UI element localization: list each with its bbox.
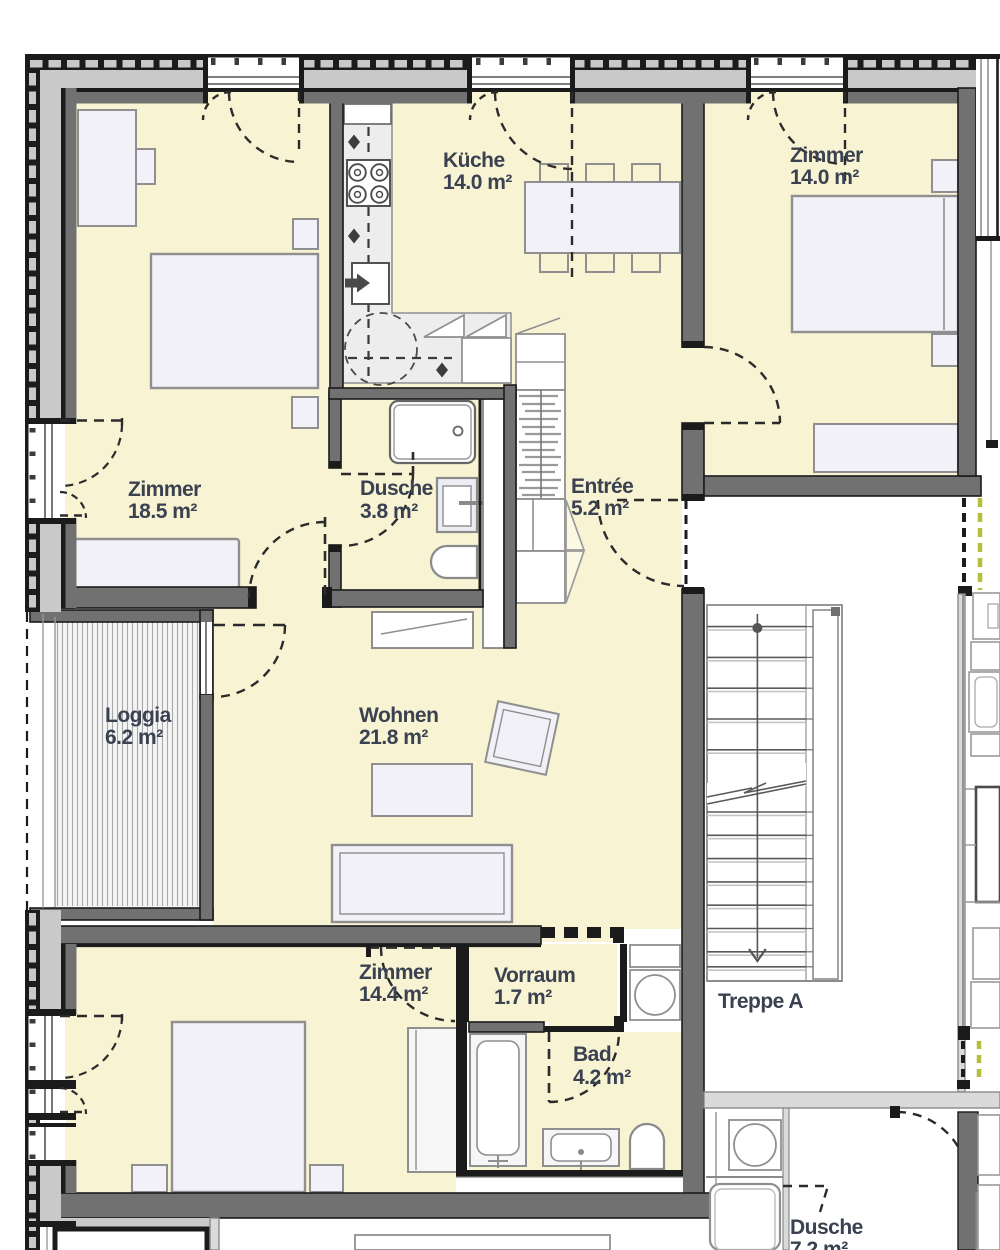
svg-text:Vorraum: Vorraum [494,964,575,987]
svg-text:5.2 m²: 5.2 m² [571,497,629,520]
svg-text:14.0 m²: 14.0 m² [790,166,859,189]
svg-text:Zimmer: Zimmer [790,144,863,167]
svg-text:Dusche: Dusche [360,477,433,500]
svg-text:3.8 m²: 3.8 m² [360,500,418,523]
svg-text:Küche: Küche [443,149,505,172]
svg-text:6.2 m²: 6.2 m² [105,726,163,749]
svg-text:1.7 m²: 1.7 m² [494,986,552,1009]
svg-text:Zimmer: Zimmer [128,478,201,501]
svg-text:Zimmer: Zimmer [359,961,432,984]
svg-text:4.2 m²: 4.2 m² [573,1066,631,1089]
svg-text:Entrée: Entrée [571,475,633,498]
svg-text:14.0 m²: 14.0 m² [443,171,512,194]
svg-text:7.2 m²: 7.2 m² [790,1238,848,1250]
svg-text:14.4 m²: 14.4 m² [359,983,428,1006]
svg-text:Bad: Bad [573,1043,611,1066]
svg-text:Loggia: Loggia [105,704,172,727]
svg-text:18.5 m²: 18.5 m² [128,500,197,523]
svg-text:Treppe A: Treppe A [718,990,803,1013]
svg-text:Dusche: Dusche [790,1216,863,1239]
svg-text:21.8 m²: 21.8 m² [359,726,428,749]
svg-text:Wohnen: Wohnen [359,704,438,727]
